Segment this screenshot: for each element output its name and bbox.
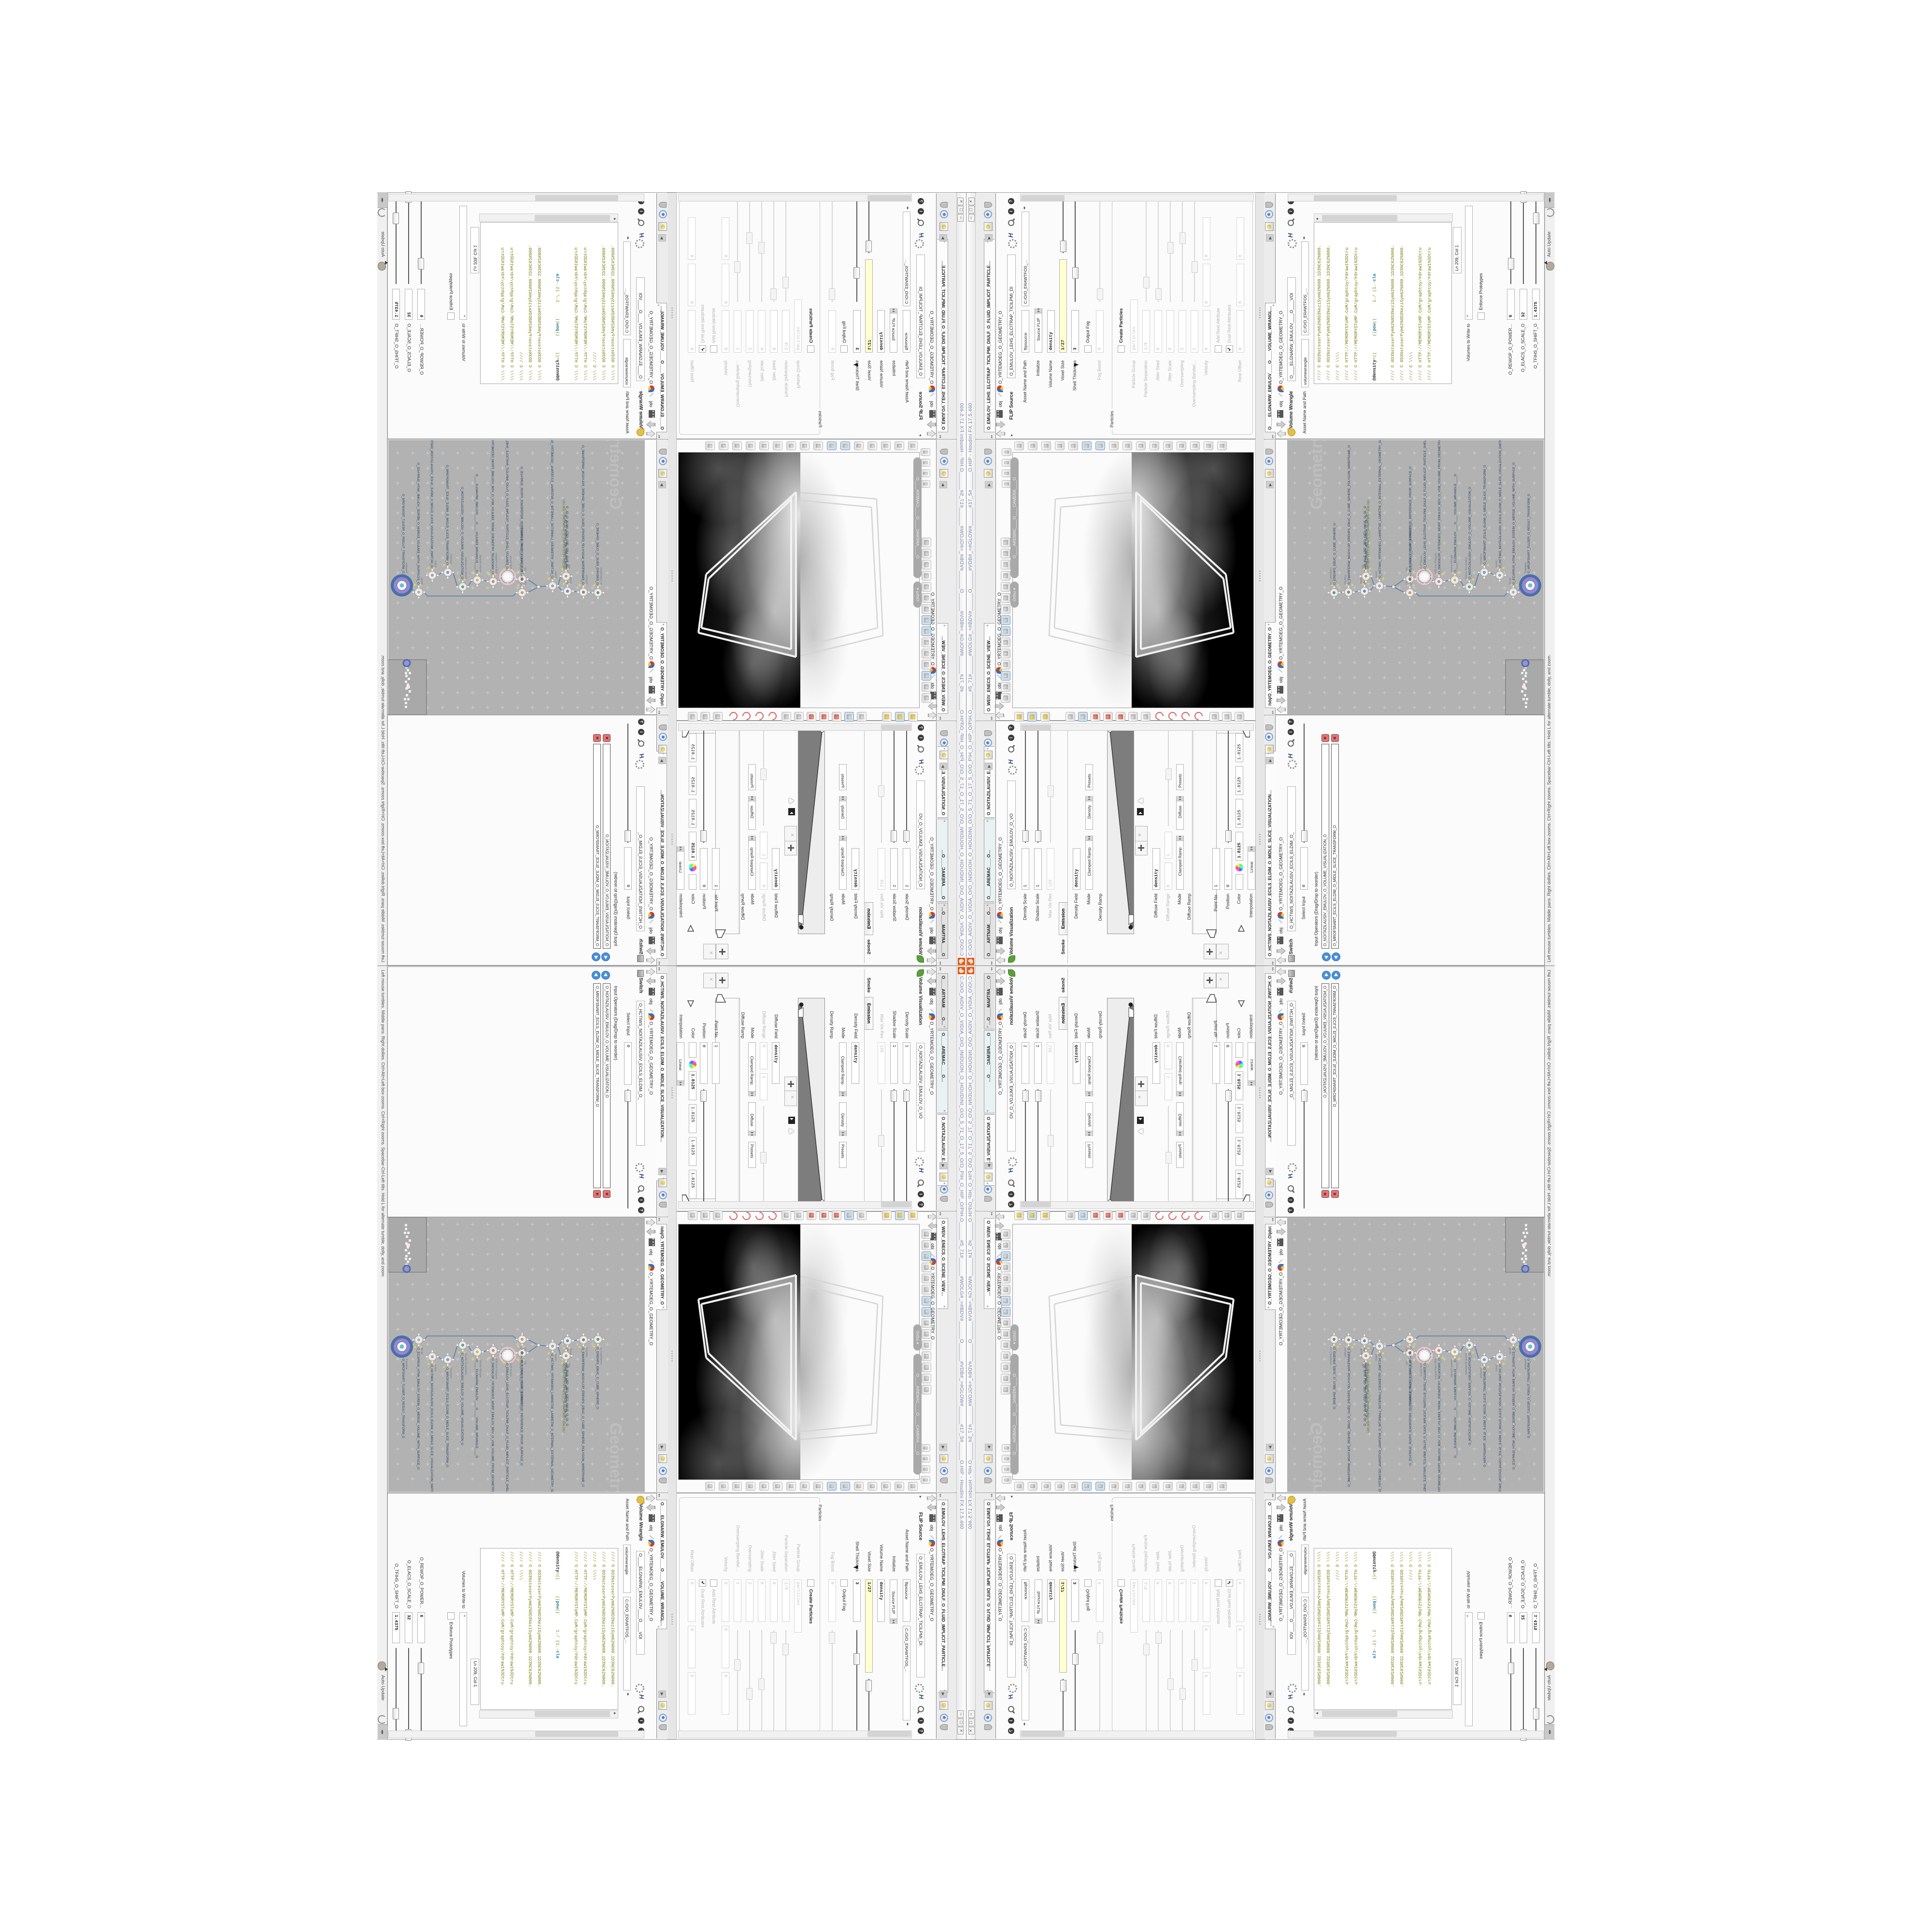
svg-text:File: File	[1362, 1364, 1364, 1367]
svg-text:Switch: Switch	[434, 1364, 437, 1372]
svg-text:Geometry: Geometry	[606, 440, 625, 510]
svg-text:O_MROFSNART_ECILS_ELDIM_O_MIDL: O_MROFSNART_ECILS_ELDIM_O_MIDLE_SLICE_TR…	[445, 465, 449, 565]
svg-text:File: File	[568, 1364, 570, 1367]
svg-text:VDB from Polygons: VDB from Polygons	[1435, 553, 1437, 574]
svg-text:FLIP Source: FLIP Source	[1420, 555, 1423, 569]
svg-text:Switch: Switch	[434, 560, 437, 568]
svg-text:Clip: Clip	[1406, 567, 1408, 571]
svg-text:Transform: Transform	[449, 554, 452, 565]
svg-text:O_ECAFRUS_HTIW_EMULOV_EGREM_O_: O_ECAFRUS_HTIW_EMULOV_EGREM_O_MERGE_VOLU…	[1512, 1348, 1516, 1469]
svg-text:FLIP Source: FLIP Source	[1420, 1363, 1423, 1377]
svg-text:O_ECAFRUS_HTIW_EMULOV_EGREM_O_: O_ECAFRUS_HTIW_EMULOV_EGREM_O_MERGE_VOLU…	[416, 463, 420, 584]
svg-text:PolyWire: PolyWire	[1344, 1348, 1347, 1357]
svg-text:Transform: Transform	[1480, 1367, 1483, 1378]
svg-text:FLIP Source: FLIP Source	[509, 555, 512, 569]
svg-text:Clip: Clip	[524, 1347, 526, 1351]
svg-text:O_MROFSNART_TLUSER_O_RESULT_TR: O_MROFSNART_TLUSER_O_RESULT_TRANSFORM_O	[1527, 494, 1531, 573]
svg-text:File: File	[568, 565, 570, 568]
svg-text:Switch: Switch	[1375, 1354, 1378, 1361]
svg-text:DUSLDRUBO_BD_GANUS_O_QL_D: DUSLDRUBO_BD_GANUS_O_QL_D	[1365, 515, 1368, 568]
svg-text:O_EREHPS_EBUC_O_CUBE_SPHERE_O: O_EREHPS_EBUC_O_CUBE_SPHERE_O	[596, 1347, 599, 1409]
svg-text:Merge: Merge	[1509, 1348, 1512, 1354]
svg-text:O_ECAFRUS_PILC_O_CLIP_SURFACE_: O_ECAFRUS_PILC_O_CLIP_SURFACE_O	[1409, 523, 1412, 585]
svg-text:Switch: Switch	[1495, 1364, 1498, 1372]
svg-text:O_EREHPS_EBUC_O_CUBE_SPHERE_O: O_EREHPS_EBUC_O_CUBE_SPHERE_O	[596, 523, 599, 585]
svg-text:PolyWire: PolyWire	[1344, 575, 1347, 584]
svg-text:O_MROFSNART_TLUSER_O_RESULT_TR: O_MROFSNART_TLUSER_O_RESULT_TRANSFORM_O	[1527, 1359, 1531, 1438]
svg-text:Geometry: Geometry	[1307, 440, 1326, 510]
svg-text:Transform: Transform	[405, 1359, 408, 1370]
svg-text:O_HCTIWS_YRTEMOEG_LANRETXE_LAN: O_HCTIWS_YRTEMOEG_LANRETXE_LANRETNI_O_IN…	[1378, 1354, 1382, 1492]
svg-text:O_HCTIWS_YRTEMOEG_LANRETXE_LAN: O_HCTIWS_YRTEMOEG_LANRETXE_LANRETNI_O_IN…	[1378, 440, 1382, 578]
svg-text:Volume Wrangle: Volume Wrangle	[479, 554, 482, 572]
svg-text:Volume Visualization: Volume Visualization	[1465, 1353, 1468, 1375]
svg-text:Merge: Merge	[1509, 578, 1512, 584]
svg-text:DUSLDRUBO_BD_GANUS_O_QL_D: DUSLDRUBO_BD_GANUS_O_QL_D	[564, 1364, 567, 1417]
svg-text:O_SNOGILOP_YRTEMOEG_MORF_EMULO: O_SNOGILOP_YRTEMOEG_MORF_EMULOV_BDV_O_VD…	[491, 440, 494, 574]
svg-text:Clip: Clip	[1406, 581, 1408, 585]
svg-text:O_HCTIWS_NOITAZILAUSIV_ECILS_E: O_HCTIWS_NOITAZILAUSIV_ECILS_ELDIM_O_MID…	[1499, 440, 1502, 568]
svg-text:O_ECAFRUS_PILC_O_CLIP_SURFACE_: O_ECAFRUS_PILC_O_CLIP_SURFACE_O	[520, 1347, 523, 1409]
svg-text:O_SNOGILOP_YRTEMOEG_MORF_EMULO: O_SNOGILOP_YRTEMOEG_MORF_EMULOV_BDV_O_VD…	[491, 1358, 494, 1492]
svg-text:Switch: Switch	[554, 571, 557, 578]
svg-text:PolyWire: PolyWire	[585, 1348, 588, 1357]
svg-text:Geometry: Geometry	[606, 1422, 625, 1492]
svg-text:O_NOITAZILAUSIV_EMULOV_O_VOLUM: O_NOITAZILAUSIV_EMULOV_O_VOLUME_VISUALIZ…	[460, 487, 464, 579]
svg-text:Transform: Transform	[449, 1367, 452, 1378]
svg-text:O_EMARFERIW_NOGYLOP_EREHPS_EBU: O_EMARFERIW_NOGYLOP_EREHPS_EBUC_O_CUBE_S…	[1348, 445, 1351, 584]
svg-text:VDB from Polygons: VDB from Polygons	[495, 553, 497, 574]
svg-text:O_EMARFERIW_NOGYLOP_EREHPS_EBU: O_EMARFERIW_NOGYLOP_EREHPS_EBUC_O_CUBE_S…	[581, 445, 584, 584]
svg-text:Merge: Merge	[420, 1348, 423, 1354]
svg-text:O____ELGNARW_EMULOV____O____VO: O____ELGNARW_EMULOV____O____VOLUME_WRANG…	[1454, 1360, 1457, 1458]
svg-text:O_ECAFRUS_HTIW_EMULOV_EGREM_O_: O_ECAFRUS_HTIW_EMULOV_EGREM_O_MERGE_VOLU…	[416, 1348, 420, 1469]
svg-text:Volume Visualization: Volume Visualization	[464, 557, 467, 579]
svg-text:O_EMARFERIW_NOGYLOP_EREHPS_EBU: O_EMARFERIW_NOGYLOP_EREHPS_EBUC_O_CUBE_S…	[1348, 1348, 1351, 1487]
svg-text:O_EMULOV_LEHS_ELCITRAP_TICILPM: O_EMULOV_LEHS_ELCITRAP_TICILPMI_DIULF_O_…	[505, 1363, 509, 1492]
svg-text:File: File	[1362, 565, 1364, 568]
svg-text:Merge: Merge	[420, 578, 423, 584]
svg-text:O_HCTIWS_YRTEMOEG_LANRETXE_LAN: O_HCTIWS_YRTEMOEG_LANRETXE_LANRETNI_O_IN…	[550, 440, 554, 578]
svg-text:O_MROFSNART_ECILS_ELDIM_O_MIDL: O_MROFSNART_ECILS_ELDIM_O_MIDLE_SLICE_TR…	[445, 1367, 449, 1467]
svg-text:FLIP Source: FLIP Source	[509, 1363, 512, 1377]
svg-text:Volume Visualization: Volume Visualization	[464, 1353, 467, 1375]
svg-text:O_ECAFRUS_PILC_O_CLIP_SURFACE_: O_ECAFRUS_PILC_O_CLIP_SURFACE_O	[1409, 1347, 1412, 1409]
svg-text:O_EMULOV_LEHS_ELCITRAP_TICILPM: O_EMULOV_LEHS_ELCITRAP_TICILPMI_DIULF_O_…	[1423, 440, 1427, 569]
svg-text:O_HCTIWS_YRTEMOEG_LANRETXE_LAN: O_HCTIWS_YRTEMOEG_LANRETXE_LANRETNI_O_IN…	[550, 1354, 554, 1492]
svg-text:O_ECAFRUS_HTIW_EMULOV_EGREM_O_: O_ECAFRUS_HTIW_EMULOV_EGREM_O_MERGE_VOLU…	[1512, 463, 1516, 584]
svg-text:Volume Wrangle: Volume Wrangle	[1450, 1360, 1453, 1378]
svg-text:Clip: Clip	[1406, 1361, 1408, 1365]
svg-text:DUSLDRUBO_BD_GANUS_O_QL_D: DUSLDRUBO_BD_GANUS_O_QL_D	[1365, 1364, 1368, 1417]
svg-text:O_EREHPS_EBUC_O_CUBE_SPHERE_O: O_EREHPS_EBUC_O_CUBE_SPHERE_O	[1333, 523, 1336, 585]
svg-text:Clip: Clip	[524, 1361, 526, 1365]
svg-text:O_EREHPS_EBUC_O_CUBE_SPHERE_O: O_EREHPS_EBUC_O_CUBE_SPHERE_O	[1333, 1347, 1336, 1409]
svg-text:O_NOITAZILAUSIV_EMULOV_O_VOLUM: O_NOITAZILAUSIV_EMULOV_O_VOLUME_VISUALIZ…	[1468, 487, 1472, 579]
svg-text:Volume Visualization: Volume Visualization	[1465, 557, 1468, 579]
svg-text:O_MROFSNART_ECILS_ELDIM_O_MIDL: O_MROFSNART_ECILS_ELDIM_O_MIDLE_SLICE_TR…	[1483, 1367, 1487, 1467]
svg-text:VDB from Polygons: VDB from Polygons	[1435, 1358, 1437, 1379]
svg-text:Transform: Transform	[405, 562, 408, 573]
svg-text:VDB from Polygons: VDB from Polygons	[495, 1358, 497, 1379]
svg-text:Volume Wrangle: Volume Wrangle	[479, 1360, 482, 1378]
svg-text:Switch: Switch	[1495, 560, 1498, 568]
svg-text:Clip: Clip	[524, 581, 526, 585]
svg-text:O_HCTIWS_NOITAZILAUSIV_ECILS_E: O_HCTIWS_NOITAZILAUSIV_ECILS_ELDIM_O_MID…	[430, 1364, 433, 1492]
svg-text:O_NOITAZILAUSIV_EMULOV_O_VOLUM: O_NOITAZILAUSIV_EMULOV_O_VOLUME_VISUALIZ…	[1468, 1353, 1472, 1445]
svg-text:Clip: Clip	[1406, 1347, 1408, 1351]
svg-text:an_CubeSphere: an_CubeSphere	[1330, 567, 1333, 585]
svg-text:O_EMULOV_LEHS_ELCITRAP_TICILPM: O_EMULOV_LEHS_ELCITRAP_TICILPMI_DIULF_O_…	[1423, 1363, 1427, 1492]
svg-text:Transform: Transform	[1480, 554, 1483, 565]
svg-text:Geometry: Geometry	[1307, 1422, 1326, 1492]
svg-text:O_SNOGILOP_YRTEMOEG_MORF_EMULO: O_SNOGILOP_YRTEMOEG_MORF_EMULOV_BDV_O_VD…	[1438, 1358, 1441, 1492]
svg-text:O_EMARFERIW_NOGYLOP_EREHPS_EBU: O_EMARFERIW_NOGYLOP_EREHPS_EBUC_O_CUBE_S…	[581, 1348, 584, 1487]
svg-text:O_MROFSNART_ECILS_ELDIM_O_MIDL: O_MROFSNART_ECILS_ELDIM_O_MIDLE_SLICE_TR…	[1483, 465, 1487, 565]
svg-text:O_MROFSNART_TLUSER_O_RESULT_TR: O_MROFSNART_TLUSER_O_RESULT_TRANSFORM_O	[401, 494, 405, 573]
svg-text:Switch: Switch	[554, 1354, 557, 1361]
svg-text:O_MROFSNART_TLUSER_O_RESULT_TR: O_MROFSNART_TLUSER_O_RESULT_TRANSFORM_O	[401, 1359, 405, 1438]
svg-text:O_SNOGILOP_YRTEMOEG_MORF_EMULO: O_SNOGILOP_YRTEMOEG_MORF_EMULOV_BDV_O_VD…	[1438, 440, 1441, 574]
svg-text:an_CubeSphere: an_CubeSphere	[599, 567, 602, 585]
svg-text:an_CubeSphere: an_CubeSphere	[1330, 1347, 1333, 1365]
svg-text:O____ELGNARW_EMULOV____O____VO: O____ELGNARW_EMULOV____O____VOLUME_WRANG…	[475, 1360, 478, 1458]
svg-text:an_CubeSphere: an_CubeSphere	[599, 1347, 602, 1365]
svg-text:O_HCTIWS_NOITAZILAUSIV_ECILS_E: O_HCTIWS_NOITAZILAUSIV_ECILS_ELDIM_O_MID…	[430, 440, 433, 568]
svg-text:Clip: Clip	[524, 567, 526, 571]
svg-text:Switch: Switch	[1375, 571, 1378, 578]
svg-text:O_ECAFRUS_PILC_O_CLIP_SURFACE_: O_ECAFRUS_PILC_O_CLIP_SURFACE_O	[520, 523, 523, 585]
svg-text:O_EMULOV_LEHS_ELCITRAP_TICILPM: O_EMULOV_LEHS_ELCITRAP_TICILPMI_DIULF_O_…	[505, 440, 509, 569]
svg-text:DUSLDRUBO_BD_GANUS_O_QL_D: DUSLDRUBO_BD_GANUS_O_QL_D	[564, 515, 567, 568]
svg-text:O____ELGNARW_EMULOV____O____VO: O____ELGNARW_EMULOV____O____VOLUME_WRANG…	[1454, 474, 1457, 572]
svg-text:O____ELGNARW_EMULOV____O____VO: O____ELGNARW_EMULOV____O____VOLUME_WRANG…	[475, 474, 478, 572]
svg-text:O_HCTIWS_NOITAZILAUSIV_ECILS_E: O_HCTIWS_NOITAZILAUSIV_ECILS_ELDIM_O_MID…	[1499, 1364, 1502, 1492]
svg-text:O_NOITAZILAUSIV_EMULOV_O_VOLUM: O_NOITAZILAUSIV_EMULOV_O_VOLUME_VISUALIZ…	[460, 1353, 464, 1445]
svg-text:Volume Wrangle: Volume Wrangle	[1450, 554, 1453, 572]
svg-text:PolyWire: PolyWire	[585, 575, 588, 584]
